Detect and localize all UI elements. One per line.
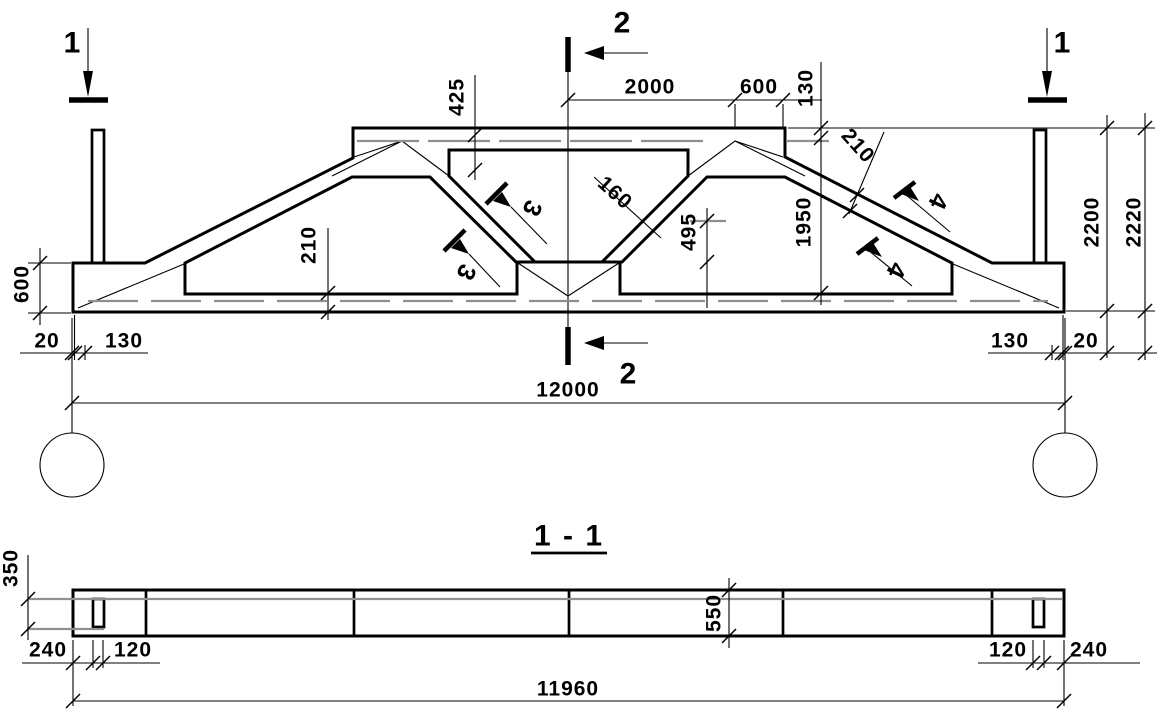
axis-circle-right: [1033, 433, 1097, 497]
truss-drawing-canvas: 1 1 2 2 3 3 4: [0, 0, 1161, 718]
section-marker-2-top: 2: [568, 7, 648, 73]
section-label-1-right: 1: [1054, 27, 1071, 60]
dim-label-130-left: 130: [105, 330, 143, 353]
section-1-1-view: 1 - 1: [27, 520, 1064, 637]
dim-label-160: 160: [593, 172, 637, 215]
right-dowel-hole: [1033, 599, 1044, 627]
section-label-4-upper: 4: [922, 189, 953, 214]
dim-label-1950: 1950: [793, 197, 816, 248]
dim-label-2200: 2200: [1081, 197, 1104, 248]
right-dowel-post: [1034, 130, 1046, 263]
dim-label-600-top: 600: [740, 76, 778, 99]
section-marker-4-lower: 4: [857, 238, 912, 286]
dim-label-600-end: 600: [11, 265, 34, 303]
dim-label-495: 495: [678, 213, 701, 251]
section-marker-3-upper: 3: [486, 183, 548, 244]
dim-label-20-right: 20: [1073, 330, 1098, 353]
section-label-2-top: 2: [614, 7, 631, 40]
section-marker-4-upper: 4: [894, 182, 954, 232]
arrow-down-icon: [83, 71, 93, 97]
dim-label-120-right: 120: [989, 639, 1027, 662]
dim-label-120-left: 120: [114, 639, 152, 662]
node-v-left: [518, 263, 568, 296]
section-label-2-bottom: 2: [620, 358, 637, 391]
dim-label-425: 425: [446, 78, 469, 116]
dim-label-240-left: 240: [29, 639, 67, 662]
dim-label-2000: 2000: [625, 76, 676, 99]
elevation-dimension-labels: 425 2000 600 130 210 160 495 1950 210 60…: [11, 69, 1146, 402]
dim-label-550: 550: [703, 594, 726, 632]
section-dimension-labels: 350 240 120 550 120 240 11960: [0, 549, 1108, 701]
dim-label-11960: 11960: [537, 678, 599, 701]
section-label-4-lower: 4: [880, 258, 911, 283]
arrow-left-icon: [584, 336, 604, 350]
drawing-sheet: 1 1 2 2 3 3 4: [0, 0, 1161, 718]
dim-label-350: 350: [0, 549, 23, 587]
dim-label-2220: 2220: [1123, 197, 1146, 248]
dim-label-240-right: 240: [1070, 639, 1108, 662]
dim-label-20-left: 20: [34, 330, 59, 353]
dim-label-130-step: 130: [795, 69, 818, 107]
dim-label-210-bottom-chord: 210: [298, 226, 321, 264]
dim-label-12000: 12000: [536, 379, 599, 402]
section-label-1-left: 1: [64, 27, 81, 60]
section-label-3-lower: 3: [450, 260, 481, 284]
arrow-down-icon: [1042, 71, 1052, 97]
left-dowel-hole: [93, 599, 104, 627]
elevation-dimension-lines: [20, 62, 1157, 433]
dim-label-130-right: 130: [991, 330, 1029, 353]
section-title: 1 - 1: [534, 520, 604, 553]
elevation-axis-bubbles: [40, 433, 1097, 497]
arrow-left-icon: [584, 46, 604, 60]
section-marker-1-left: 1: [64, 27, 108, 101]
section-marker-1-right: 1: [1028, 27, 1070, 101]
left-dowel-post: [92, 130, 104, 263]
dim-label-210-chord: 210: [837, 124, 880, 168]
node-v-right: [568, 263, 619, 296]
axis-circle-left: [40, 433, 104, 497]
